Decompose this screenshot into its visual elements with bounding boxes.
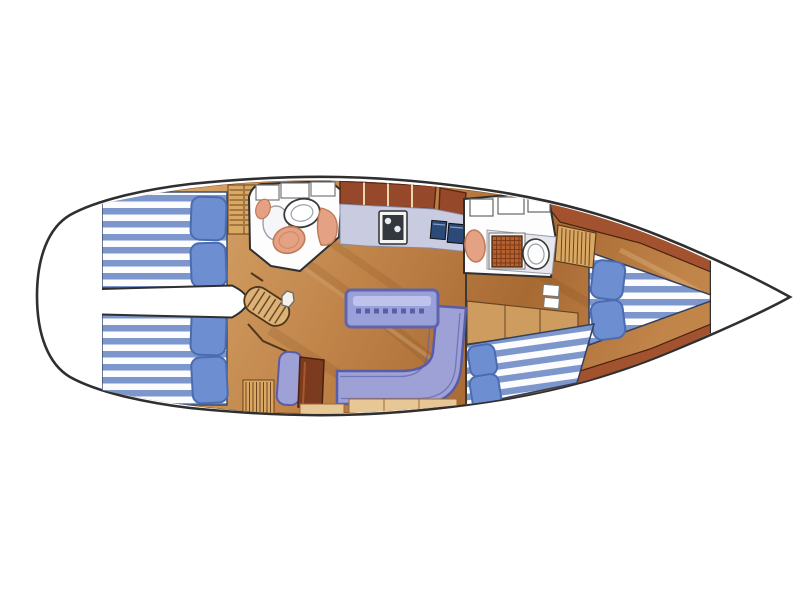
- vanity-panel: [543, 284, 560, 296]
- shower-grate: [489, 233, 525, 269]
- berth-pillow: [191, 356, 228, 404]
- forward-louvered-wardrobe: [555, 225, 596, 268]
- aft-walkway-wedge: [101, 286, 248, 318]
- head-locker: [470, 199, 493, 216]
- berth-pillow: [590, 299, 626, 341]
- berth-pillow: [590, 259, 626, 301]
- salon-cabinet: [298, 357, 324, 410]
- boat-floorplan-canvas: [0, 0, 800, 600]
- head-locker: [311, 182, 335, 196]
- burner: [394, 226, 400, 232]
- galley: [340, 181, 470, 252]
- vanity-panel: [544, 297, 560, 308]
- berth-pillow: [190, 196, 226, 240]
- berth-pillow: [190, 242, 227, 287]
- boat-floorplan: [0, 0, 800, 600]
- head-locker: [281, 183, 309, 198]
- aft-starboard-louvered-locker: [243, 380, 274, 415]
- stove: [379, 211, 407, 244]
- head-locker: [498, 197, 524, 214]
- berth-pillow: [467, 343, 499, 378]
- salon-table: [346, 290, 438, 327]
- forward-head-room: [463, 193, 556, 277]
- burner: [385, 218, 391, 224]
- head-locker: [256, 185, 279, 200]
